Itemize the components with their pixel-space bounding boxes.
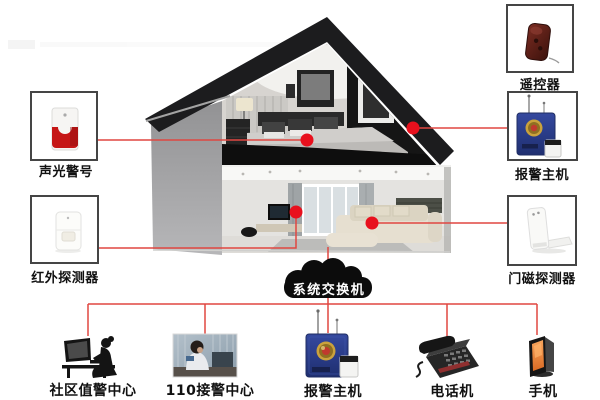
pir-label: 红外探测器 (9, 267, 121, 286)
livingroom-interior (222, 167, 451, 253)
mobile-icon (529, 336, 554, 377)
mobile-label: 手机 (487, 381, 599, 400)
remote-label: 遥控器 (484, 74, 596, 93)
alarm-host-bottom-label: 报警主机 (277, 381, 389, 400)
door-sensor-label: 门磁探测器 (486, 268, 598, 287)
siren-label: 声光警号 (10, 161, 122, 180)
siren-icon (52, 108, 78, 150)
bedroom-lamp (236, 98, 253, 111)
dot-living-left (290, 206, 303, 219)
telephone-icon (416, 336, 479, 378)
house-cutaway (145, 17, 454, 255)
police-110-icon (173, 334, 237, 377)
dot-bedroom-right (407, 122, 420, 135)
dot-living-right (366, 217, 379, 230)
dot-bedroom-left (301, 134, 314, 147)
alarm-host-label: 报警主机 (486, 164, 598, 183)
hub-label: 系统交换机 (283, 279, 375, 298)
police-110-label: 110接警中心 (154, 380, 266, 400)
pir-icon (55, 212, 81, 253)
bedroom-cabinet (226, 119, 250, 146)
community-center-icon (62, 336, 117, 378)
alarm-host-bottom-icon (306, 309, 358, 377)
diagram-canvas (0, 0, 600, 400)
alarm-system-diagram: 声光警号 红外探测器 遥控器 报警主机 门磁探测器 系统交换机 社区值警中心 1… (0, 0, 600, 400)
community-center-label: 社区值警中心 (37, 380, 149, 400)
